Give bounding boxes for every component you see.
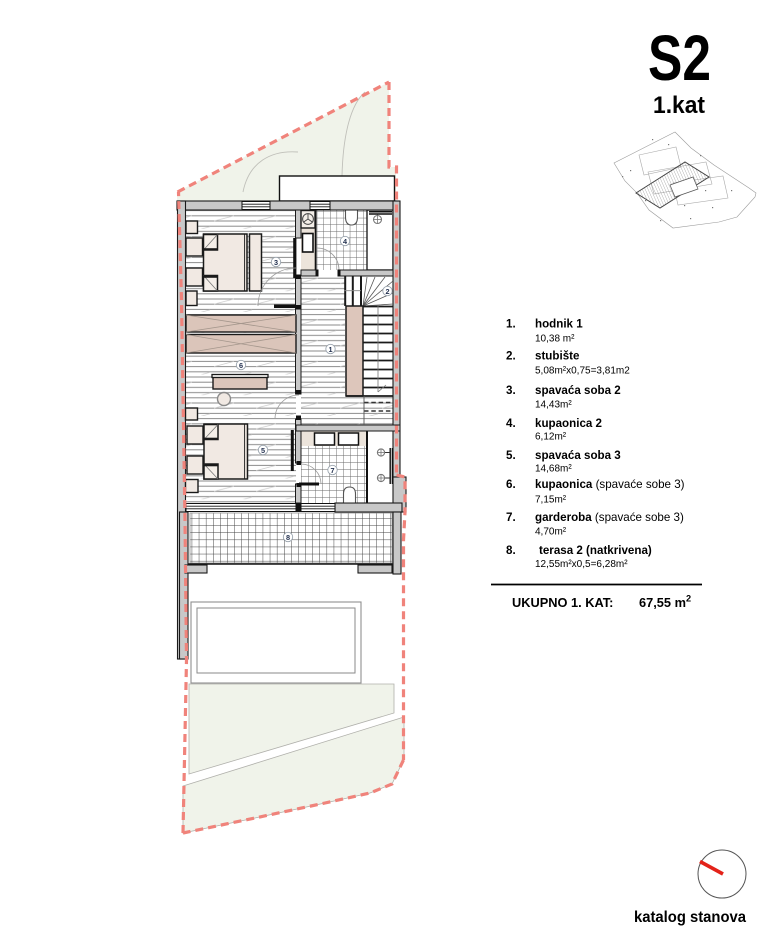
svg-text:12,55m²x0,5=6,28m²: 12,55m²x0,5=6,28m² bbox=[535, 559, 628, 570]
svg-text:UKUPNO 1. KAT:: UKUPNO 1. KAT: bbox=[512, 595, 613, 610]
svg-text:7,15m²: 7,15m² bbox=[535, 495, 567, 506]
svg-text:garderoba (spavaće sobe 3): garderoba (spavaće sobe 3) bbox=[535, 511, 684, 524]
svg-text:7.: 7. bbox=[506, 511, 516, 524]
svg-text:katalog stanova: katalog stanova bbox=[634, 909, 746, 926]
svg-text:1.kat: 1.kat bbox=[653, 92, 705, 119]
svg-text:6.: 6. bbox=[506, 478, 516, 491]
svg-text:6,12m²: 6,12m² bbox=[535, 432, 567, 443]
svg-text:hodnik 1: hodnik 1 bbox=[535, 318, 583, 331]
svg-text:10,38 m²: 10,38 m² bbox=[535, 334, 575, 345]
svg-text:3.: 3. bbox=[506, 384, 516, 397]
svg-text:3: 3 bbox=[274, 258, 278, 267]
svg-text:stubište: stubište bbox=[535, 350, 580, 363]
svg-text:4,70m²: 4,70m² bbox=[535, 527, 567, 538]
svg-text:8.: 8. bbox=[506, 544, 516, 557]
svg-text:1.: 1. bbox=[506, 318, 516, 331]
svg-text:5.: 5. bbox=[506, 449, 516, 462]
svg-text:terasa 2 (natkrivena): terasa 2 (natkrivena) bbox=[539, 544, 652, 557]
svg-text:2: 2 bbox=[385, 287, 389, 296]
svg-text:14,43m²: 14,43m² bbox=[535, 400, 572, 411]
svg-text:spavaća soba 2: spavaća soba 2 bbox=[535, 384, 621, 397]
svg-text:1: 1 bbox=[328, 345, 332, 354]
svg-text:4.: 4. bbox=[506, 417, 516, 430]
svg-text:7: 7 bbox=[330, 466, 334, 475]
svg-text:spavaća soba 3: spavaća soba 3 bbox=[535, 449, 621, 462]
svg-text:5: 5 bbox=[261, 446, 265, 455]
svg-text:5,08m²x0,75=3,81m2: 5,08m²x0,75=3,81m2 bbox=[535, 366, 630, 377]
svg-text:kupaonica (spavaće sobe 3): kupaonica (spavaće sobe 3) bbox=[535, 478, 685, 491]
svg-text:6: 6 bbox=[239, 361, 243, 370]
svg-text:kupaonica 2: kupaonica 2 bbox=[535, 417, 602, 430]
svg-text:67,55 m2: 67,55 m2 bbox=[639, 594, 691, 611]
svg-text:S2: S2 bbox=[648, 22, 711, 94]
svg-text:8: 8 bbox=[286, 533, 290, 542]
svg-text:14,68m²: 14,68m² bbox=[535, 464, 572, 475]
svg-text:2.: 2. bbox=[506, 350, 516, 363]
